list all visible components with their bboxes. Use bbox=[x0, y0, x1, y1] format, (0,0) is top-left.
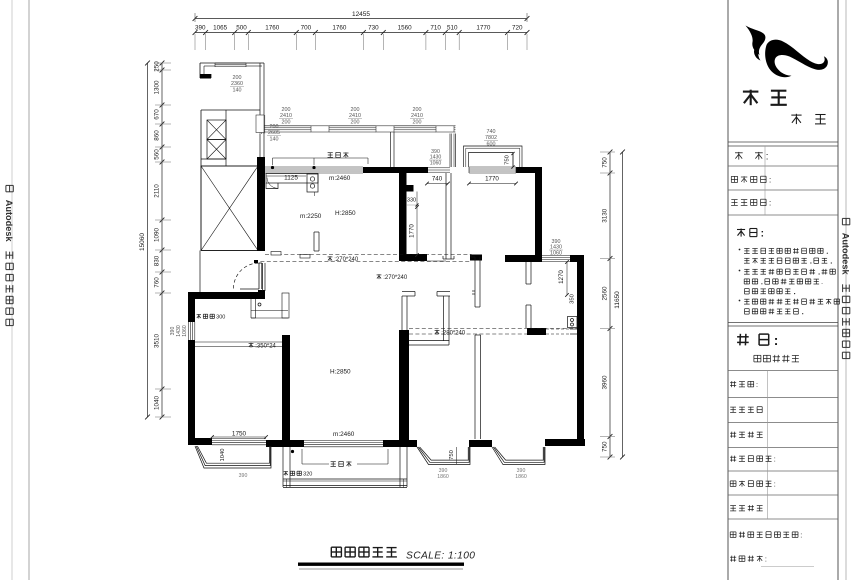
svg-text:320: 320 bbox=[303, 472, 312, 478]
svg-text:1125: 1125 bbox=[284, 175, 298, 182]
svg-text:200: 200 bbox=[413, 120, 422, 126]
svg-text:2110: 2110 bbox=[154, 184, 161, 198]
svg-text:1760: 1760 bbox=[332, 25, 347, 32]
svg-text:250: 250 bbox=[154, 61, 161, 72]
svg-text:510: 510 bbox=[447, 25, 458, 32]
svg-text:H:2850: H:2850 bbox=[335, 210, 356, 217]
svg-text:m:2250: m:2250 bbox=[300, 213, 322, 220]
svg-text::270*240: :270*240 bbox=[383, 275, 408, 281]
svg-text::: : bbox=[756, 380, 758, 389]
svg-text:2560: 2560 bbox=[602, 286, 609, 301]
svg-text:m:2460: m:2460 bbox=[333, 431, 355, 438]
svg-text:390: 390 bbox=[239, 473, 248, 479]
svg-text:330: 330 bbox=[407, 198, 416, 204]
svg-text:860: 860 bbox=[154, 130, 161, 141]
svg-text:140: 140 bbox=[270, 137, 279, 143]
svg-text::: : bbox=[761, 229, 764, 240]
svg-text:1770: 1770 bbox=[476, 25, 491, 32]
svg-text::: : bbox=[769, 199, 771, 208]
svg-text:1060: 1060 bbox=[182, 325, 188, 337]
svg-text:3130: 3130 bbox=[602, 208, 609, 223]
svg-text:1300: 1300 bbox=[154, 80, 161, 95]
svg-text:830: 830 bbox=[154, 255, 161, 266]
svg-text:750: 750 bbox=[449, 450, 455, 460]
svg-text:710: 710 bbox=[430, 25, 441, 32]
svg-text:740: 740 bbox=[432, 176, 443, 183]
svg-text::: : bbox=[769, 176, 771, 185]
svg-text:760: 760 bbox=[154, 277, 161, 288]
svg-text:1060: 1060 bbox=[550, 251, 562, 257]
svg-text:730: 730 bbox=[368, 25, 379, 32]
svg-text:7802: 7802 bbox=[485, 135, 497, 141]
svg-text:2410: 2410 bbox=[280, 113, 292, 119]
svg-text:390: 390 bbox=[195, 25, 206, 32]
svg-text:11650: 11650 bbox=[614, 291, 621, 309]
svg-text:1090: 1090 bbox=[154, 228, 161, 243]
svg-text:H:2850: H:2850 bbox=[330, 369, 351, 376]
svg-text:3960: 3960 bbox=[602, 375, 609, 390]
svg-text:750: 750 bbox=[505, 155, 511, 165]
svg-text:.: . bbox=[821, 279, 823, 286]
svg-text:700: 700 bbox=[301, 25, 312, 32]
svg-text::270*240: :270*240 bbox=[334, 257, 359, 263]
svg-text::350*24: :350*24 bbox=[255, 344, 276, 350]
svg-text:3510: 3510 bbox=[154, 334, 161, 349]
svg-text:1040: 1040 bbox=[220, 449, 226, 462]
svg-text::: : bbox=[774, 455, 776, 464]
svg-text:15060: 15060 bbox=[139, 233, 146, 251]
svg-text:200: 200 bbox=[351, 120, 360, 126]
svg-text:1065: 1065 bbox=[213, 25, 228, 32]
svg-text:670: 670 bbox=[154, 109, 161, 120]
svg-text:750: 750 bbox=[602, 157, 609, 168]
svg-text::: : bbox=[765, 555, 767, 564]
svg-text:560: 560 bbox=[154, 149, 161, 160]
svg-text:140: 140 bbox=[233, 88, 242, 94]
svg-text:1770: 1770 bbox=[485, 176, 499, 183]
svg-text:12455: 12455 bbox=[352, 11, 370, 18]
svg-text:1760: 1760 bbox=[265, 25, 280, 32]
svg-text:600: 600 bbox=[487, 142, 496, 148]
svg-text:500: 500 bbox=[236, 25, 247, 32]
svg-text:1860: 1860 bbox=[437, 474, 449, 480]
svg-text:2605: 2605 bbox=[268, 130, 280, 136]
svg-text:1270: 1270 bbox=[558, 270, 565, 284]
svg-text::: : bbox=[766, 152, 769, 163]
svg-text:1560: 1560 bbox=[398, 25, 413, 32]
svg-text:SCALE: 1:100: SCALE: 1:100 bbox=[406, 551, 475, 562]
svg-text:2410: 2410 bbox=[349, 113, 361, 119]
svg-text:1860: 1860 bbox=[515, 474, 527, 480]
svg-text:2360: 2360 bbox=[231, 81, 243, 87]
svg-text:200: 200 bbox=[282, 120, 291, 126]
svg-text:1770: 1770 bbox=[409, 224, 416, 238]
svg-text:300: 300 bbox=[216, 315, 225, 321]
svg-text:Autodesk: Autodesk bbox=[4, 200, 14, 243]
svg-text:Autodesk: Autodesk bbox=[841, 233, 851, 276]
svg-text:1060: 1060 bbox=[430, 161, 442, 167]
svg-text:350: 350 bbox=[570, 294, 576, 304]
svg-text:1750: 1750 bbox=[232, 431, 247, 438]
svg-text::: : bbox=[800, 531, 802, 540]
svg-text::280*240: :280*240 bbox=[441, 331, 466, 337]
svg-text:m:2460: m:2460 bbox=[329, 175, 351, 182]
svg-text::: : bbox=[774, 333, 779, 348]
svg-text:750: 750 bbox=[602, 441, 609, 452]
svg-text:720: 720 bbox=[512, 25, 523, 32]
svg-text:2410: 2410 bbox=[411, 113, 423, 119]
svg-text:1040: 1040 bbox=[154, 396, 161, 411]
svg-text::: : bbox=[774, 480, 776, 489]
